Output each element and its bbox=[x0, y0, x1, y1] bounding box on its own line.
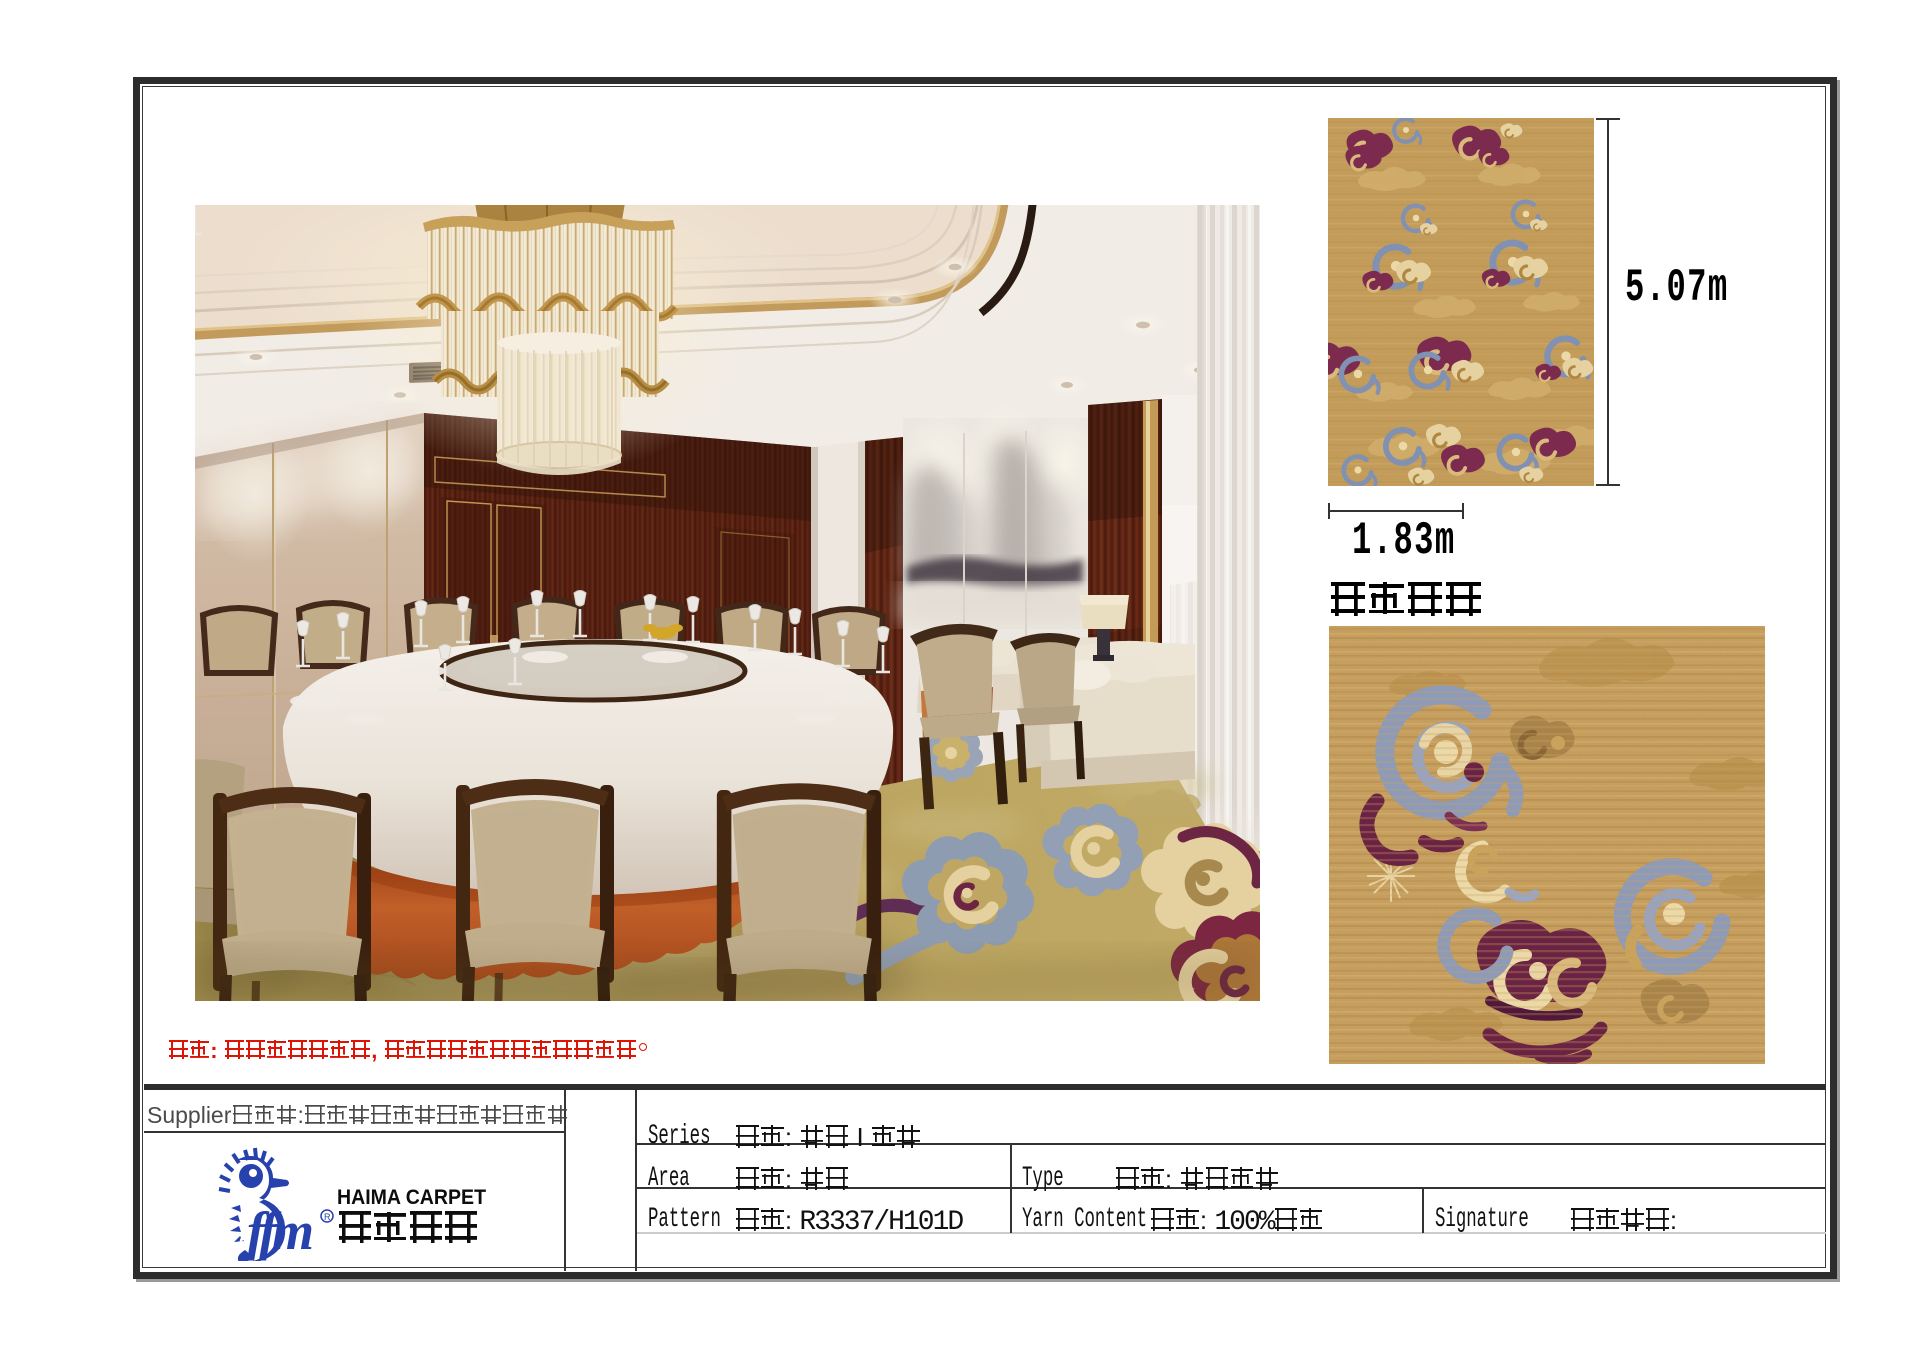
svg-text:R: R bbox=[324, 1212, 331, 1222]
svg-text:ffm: ffm bbox=[247, 1201, 312, 1261]
